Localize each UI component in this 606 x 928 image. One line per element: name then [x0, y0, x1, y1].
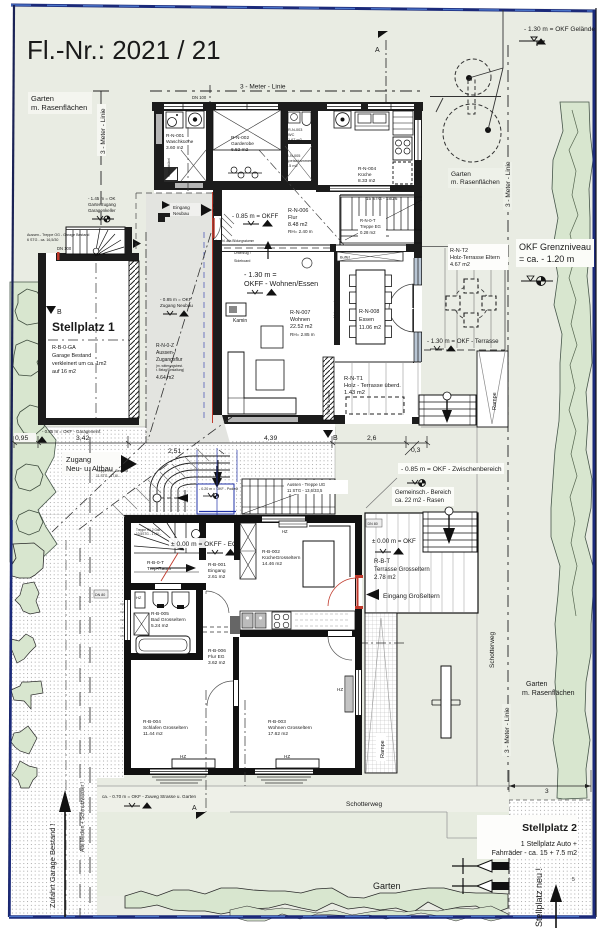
svg-text:Speisekammer: Speisekammer	[286, 159, 312, 163]
svg-text:- 1.30 m = OKF - Terrasse: - 1.30 m = OKF - Terrasse	[427, 338, 499, 345]
svg-text:R-N-0-Z: R-N-0-Z	[156, 343, 174, 349]
svg-text:- 1.30 m = OKF Gelände: - 1.30 m = OKF Gelände	[524, 26, 595, 33]
svg-text:Schotterweg: Schotterweg	[489, 631, 496, 668]
svg-text:Garderobe: Garderobe	[231, 141, 254, 147]
svg-text:Eingang Großeltern: Eingang Großeltern	[383, 593, 440, 600]
svg-text:R-N-006: R-N-006	[288, 208, 308, 214]
svg-text:DN 100: DN 100	[57, 246, 72, 251]
svg-text:4,39: 4,39	[264, 435, 277, 442]
svg-text:Schotterweg: Schotterweg	[346, 801, 383, 808]
svg-text:Rampe: Rampe	[492, 392, 498, 410]
svg-text:DN 100: DN 100	[192, 95, 207, 100]
svg-text:10,5STG - 17,6/...: 10,5STG - 17,6/...	[136, 532, 161, 536]
svg-text:Sideboard: Sideboard	[234, 259, 250, 263]
svg-text:DN 80: DN 80	[368, 522, 378, 526]
svg-text:R-B-004: R-B-004	[143, 719, 161, 725]
svg-text:OKFF - Wohnen/Essen: OKFF - Wohnen/Essen	[244, 279, 318, 288]
svg-text:Wohnen Grosseltern: Wohnen Grosseltern	[268, 725, 312, 731]
svg-text:Stellplatz 2: Stellplatz 2	[522, 822, 577, 834]
svg-text:ca. 22 m2 - Rasen: ca. 22 m2 - Rasen	[395, 498, 444, 504]
svg-text:Zugang Neubau: Zugang Neubau	[160, 303, 193, 308]
svg-text:Zugangsflur: Zugangsflur	[156, 357, 183, 363]
svg-text:1 Stellplatz Auto +: 1 Stellplatz Auto +	[521, 841, 577, 848]
svg-text:Fahrräder - ca. 15 + 7.5 m2: Fahrräder - ca. 15 + 7.5 m2	[492, 850, 578, 857]
svg-text:R-N-0-T: R-N-0-T	[360, 218, 376, 223]
svg-text:6 STG - ca. 16,5/30: 6 STG - ca. 16,5/30	[27, 238, 58, 242]
svg-text:2.78 m2: 2.78 m2	[374, 575, 396, 581]
svg-text:R-B-T: R-B-T	[374, 559, 390, 565]
svg-text:HZ: HZ	[180, 754, 186, 759]
svg-text:14.46 m2: 14.46 m2	[262, 561, 282, 567]
svg-text:4.67 m2: 4.67 m2	[450, 262, 470, 268]
svg-text:15 STG - 18/26: 15 STG - 18/26	[366, 196, 398, 201]
svg-text:R-N-T1: R-N-T1	[344, 376, 363, 382]
svg-text:- 0.85 m = OKF - Zwischenberei: - 0.85 m = OKF - Zwischenbereich	[401, 466, 502, 473]
svg-text:11 STG - 13,6/33,5: 11 STG - 13,6/33,5	[287, 488, 323, 493]
svg-text:8.33 m2: 8.33 m2	[358, 178, 376, 184]
svg-text:2,51: 2,51	[168, 448, 181, 455]
svg-text:R-B-003: R-B-003	[268, 719, 286, 725]
svg-text:Buffet: Buffet	[340, 256, 351, 260]
svg-text:Aussen - Treppe UG: Aussen - Treppe UG	[287, 482, 325, 487]
svg-text:Garten: Garten	[526, 681, 548, 688]
svg-text:11.44 m2: 11.44 m2	[143, 731, 163, 737]
svg-text:R-N-T2: R-N-T2	[450, 248, 468, 254]
svg-text:± 0.00 m = OKF: ± 0.00 m = OKF	[372, 538, 416, 545]
svg-text:R-N-007: R-N-007	[290, 310, 310, 316]
svg-text:m. Rasenflächen: m. Rasenflächen	[451, 179, 500, 186]
svg-text:Garten: Garten	[451, 171, 471, 178]
svg-text:Neubau: Neubau	[173, 211, 190, 216]
svg-text:Garten: Garten	[31, 94, 54, 103]
svg-text:- 0.20 m = OKF - Podest: - 0.20 m = OKF - Podest	[199, 487, 238, 491]
svg-text:Trep-Raum: Trep-Raum	[147, 566, 171, 572]
svg-text:Unterzug !: Unterzug !	[333, 301, 337, 318]
svg-text:WC: WC	[288, 133, 295, 137]
svg-text:HZ: HZ	[136, 595, 142, 600]
svg-text:Flur: Flur	[288, 215, 297, 221]
svg-text:RH= 2.40 m: RH= 2.40 m	[288, 229, 313, 234]
svg-text:3: 3	[545, 788, 549, 795]
svg-text:R-B-0-GA: R-B-0-GA	[52, 345, 76, 351]
svg-text:A: A	[375, 47, 380, 54]
svg-text:Schlafen Grosseltern: Schlafen Grosseltern	[143, 725, 188, 731]
svg-text:Treppe EG.- Bestand: Treppe EG.- Bestand	[96, 469, 128, 473]
svg-text:Bad Grosseltern: Bad Grosseltern	[151, 617, 186, 623]
svg-text:Aussen-/: Aussen-/	[156, 350, 176, 356]
svg-text:Gemeinsch.- Bereich: Gemeinsch.- Bereich	[395, 490, 451, 496]
svg-text:ca. - 0.70 m = OKF - Zuweg Str: ca. - 0.70 m = OKF - Zuweg Strasse u. Ga…	[102, 794, 197, 799]
svg-text:Eingang: Eingang	[173, 205, 190, 210]
svg-text:Waschkübel: Waschkübel	[167, 158, 171, 177]
svg-text:Rampe: Rampe	[380, 740, 386, 758]
svg-text:Anschl. aäs Bildungsstamm: Anschl. aäs Bildungsstamm	[215, 239, 254, 243]
svg-text:Garage Bestand: Garage Bestand	[52, 353, 91, 359]
svg-text:6.52 m2: 6.52 m2	[231, 147, 249, 153]
svg-text:Garten: Garten	[373, 881, 401, 891]
svg-text:- 0.85 m = OKFF: - 0.85 m = OKFF	[232, 213, 278, 220]
svg-text:R-N-001: R-N-001	[166, 133, 184, 139]
svg-text:Gartenzugang: Gartenzugang	[88, 202, 116, 207]
svg-text:B: B	[57, 309, 62, 316]
svg-text:4.64 m2: 4.64 m2	[156, 375, 174, 381]
svg-text:R-N-005: R-N-005	[286, 154, 300, 158]
svg-text:- 0.85 m = OKF: - 0.85 m = OKF	[160, 297, 192, 302]
svg-text:3.62 m2: 3.62 m2	[208, 660, 226, 666]
svg-text:Wohnen: Wohnen	[290, 317, 310, 323]
svg-text:11 STG - 17,6/...: 11 STG - 17,6/...	[96, 474, 121, 478]
svg-text:- 1.30 m =: - 1.30 m =	[244, 270, 277, 279]
svg-text:Aussen.- Treppe OG - Garage Be: Aussen.- Treppe OG - Garage Bestand	[27, 233, 89, 237]
svg-text:A: A	[192, 805, 197, 812]
svg-text:HZ: HZ	[337, 687, 343, 692]
svg-text:HZ: HZ	[284, 754, 290, 759]
svg-text:m. Rasenflächen: m. Rasenflächen	[31, 103, 87, 112]
svg-text:Treppe EG: Treppe EG	[360, 224, 382, 229]
svg-text:Holz - Terrasse überd.: Holz - Terrasse überd.	[344, 383, 401, 389]
svg-text:1.43 m2: 1.43 m2	[344, 390, 365, 396]
svg-text:m. Rasenflächen: m. Rasenflächen	[522, 690, 575, 697]
svg-text:Zugang: Zugang	[66, 455, 91, 464]
svg-text:R-N-002: R-N-002	[231, 135, 249, 141]
svg-text:- 0.85 m = OKF - Garageneinf.: - 0.85 m = OKF - Garageneinf.	[42, 429, 101, 434]
svg-text:Stellplatz neu !: Stellplatz neu !	[534, 868, 544, 927]
svg-text:0,95: 0,95	[15, 435, 28, 442]
svg-text:8.48 m2: 8.48 m2	[288, 222, 307, 228]
svg-text:= ca. - 1.20 m: = ca. - 1.20 m	[519, 254, 574, 264]
svg-text:TV/HiFi Comple: TV/HiFi Comple	[327, 391, 331, 415]
svg-text:11.06 m2: 11.06 m2	[359, 325, 381, 331]
svg-text:R-B-0-T: R-B-0-T	[147, 560, 164, 566]
svg-text:R-N-008: R-N-008	[359, 309, 379, 315]
svg-text:3 - Meter - Linie: 3 - Meter - Linie	[505, 161, 512, 207]
svg-text:Stellplatz 1: Stellplatz 1	[52, 320, 115, 334]
svg-text:Garagenkeller: Garagenkeller	[88, 208, 116, 213]
svg-text:R-N-003: R-N-003	[288, 128, 302, 132]
svg-text:17.62 m2: 17.62 m2	[268, 731, 288, 737]
svg-text:Holz-Terrasse Eltern: Holz-Terrasse Eltern	[450, 255, 500, 261]
svg-text:Eingang: Eingang	[208, 568, 226, 574]
svg-text:Flur EG: Flur EG	[208, 654, 225, 660]
svg-text:3 - Meter - Linie: 3 - Meter - Linie	[100, 108, 107, 154]
svg-text:5: 5	[572, 877, 575, 883]
svg-text:Unterzug !: Unterzug !	[234, 251, 251, 255]
svg-text:1.67 m2: 1.67 m2	[288, 138, 302, 142]
svg-text:Zufahrt Garage Bestand !: Zufahrt Garage Bestand !	[48, 823, 57, 908]
svg-text:R-N-004: R-N-004	[358, 166, 376, 172]
svg-text:2,6: 2,6	[367, 435, 377, 442]
svg-text:0,3: 0,3	[411, 447, 421, 454]
svg-text:verkleinert um ca. 1m2: verkleinert um ca. 1m2	[52, 361, 107, 367]
svg-text:- 1.45 m = OK: - 1.45 m = OK	[88, 196, 116, 201]
svg-text:t. Belag/Gestaltung): t. Belag/Gestaltung)	[156, 368, 184, 372]
svg-text:Fl.-Nr.: 2021 / 21: Fl.-Nr.: 2021 / 21	[27, 35, 221, 65]
svg-text:KücheGrosseltern: KücheGrosseltern	[262, 555, 301, 561]
svg-text:OKF Grenzniveau: OKF Grenzniveau	[519, 242, 591, 252]
svg-text:DN 80: DN 80	[95, 593, 105, 597]
svg-text:1.5 m2: 1.5 m2	[286, 164, 298, 168]
svg-text:22.52 m2: 22.52 m2	[290, 324, 312, 330]
svg-text:Essen: Essen	[359, 317, 374, 323]
svg-text:Waschküche: Waschküche	[166, 139, 194, 145]
svg-text:3 - Meter - Linie: 3 - Meter - Linie	[240, 84, 286, 91]
svg-text:B: B	[333, 435, 338, 442]
svg-text:RH= 2.85 m: RH= 2.85 m	[290, 332, 315, 337]
svg-text:0.28 m2: 0.28 m2	[360, 230, 376, 235]
svg-text:Terrasse Grosseltern: Terrasse Grosseltern	[374, 567, 430, 573]
svg-text:auf 16 m2: auf 16 m2	[52, 369, 76, 375]
svg-text:Alte Medien + Schmutzwasser !: Alte Medien + Schmutzwasser !	[80, 782, 86, 852]
svg-text:Küche: Küche	[358, 172, 372, 178]
svg-text:5.24 m2: 5.24 m2	[151, 623, 169, 629]
svg-text:± 0.00 m = OKFF - EG: ± 0.00 m = OKFF - EG	[171, 541, 237, 548]
svg-text:3,42: 3,42	[76, 435, 89, 442]
svg-text:R-B-005: R-B-005	[151, 611, 169, 617]
svg-text:R-B-002: R-B-002	[262, 549, 280, 555]
svg-text:2.61 m2: 2.61 m2	[208, 574, 226, 580]
svg-text:3 - Meter - Linie: 3 - Meter - Linie	[504, 707, 511, 753]
svg-text:HZ: HZ	[282, 529, 288, 534]
svg-text:R-B-006: R-B-006	[208, 648, 226, 654]
svg-text:Kamin: Kamin	[233, 318, 247, 324]
svg-text:R-B-001: R-B-001	[208, 562, 226, 568]
